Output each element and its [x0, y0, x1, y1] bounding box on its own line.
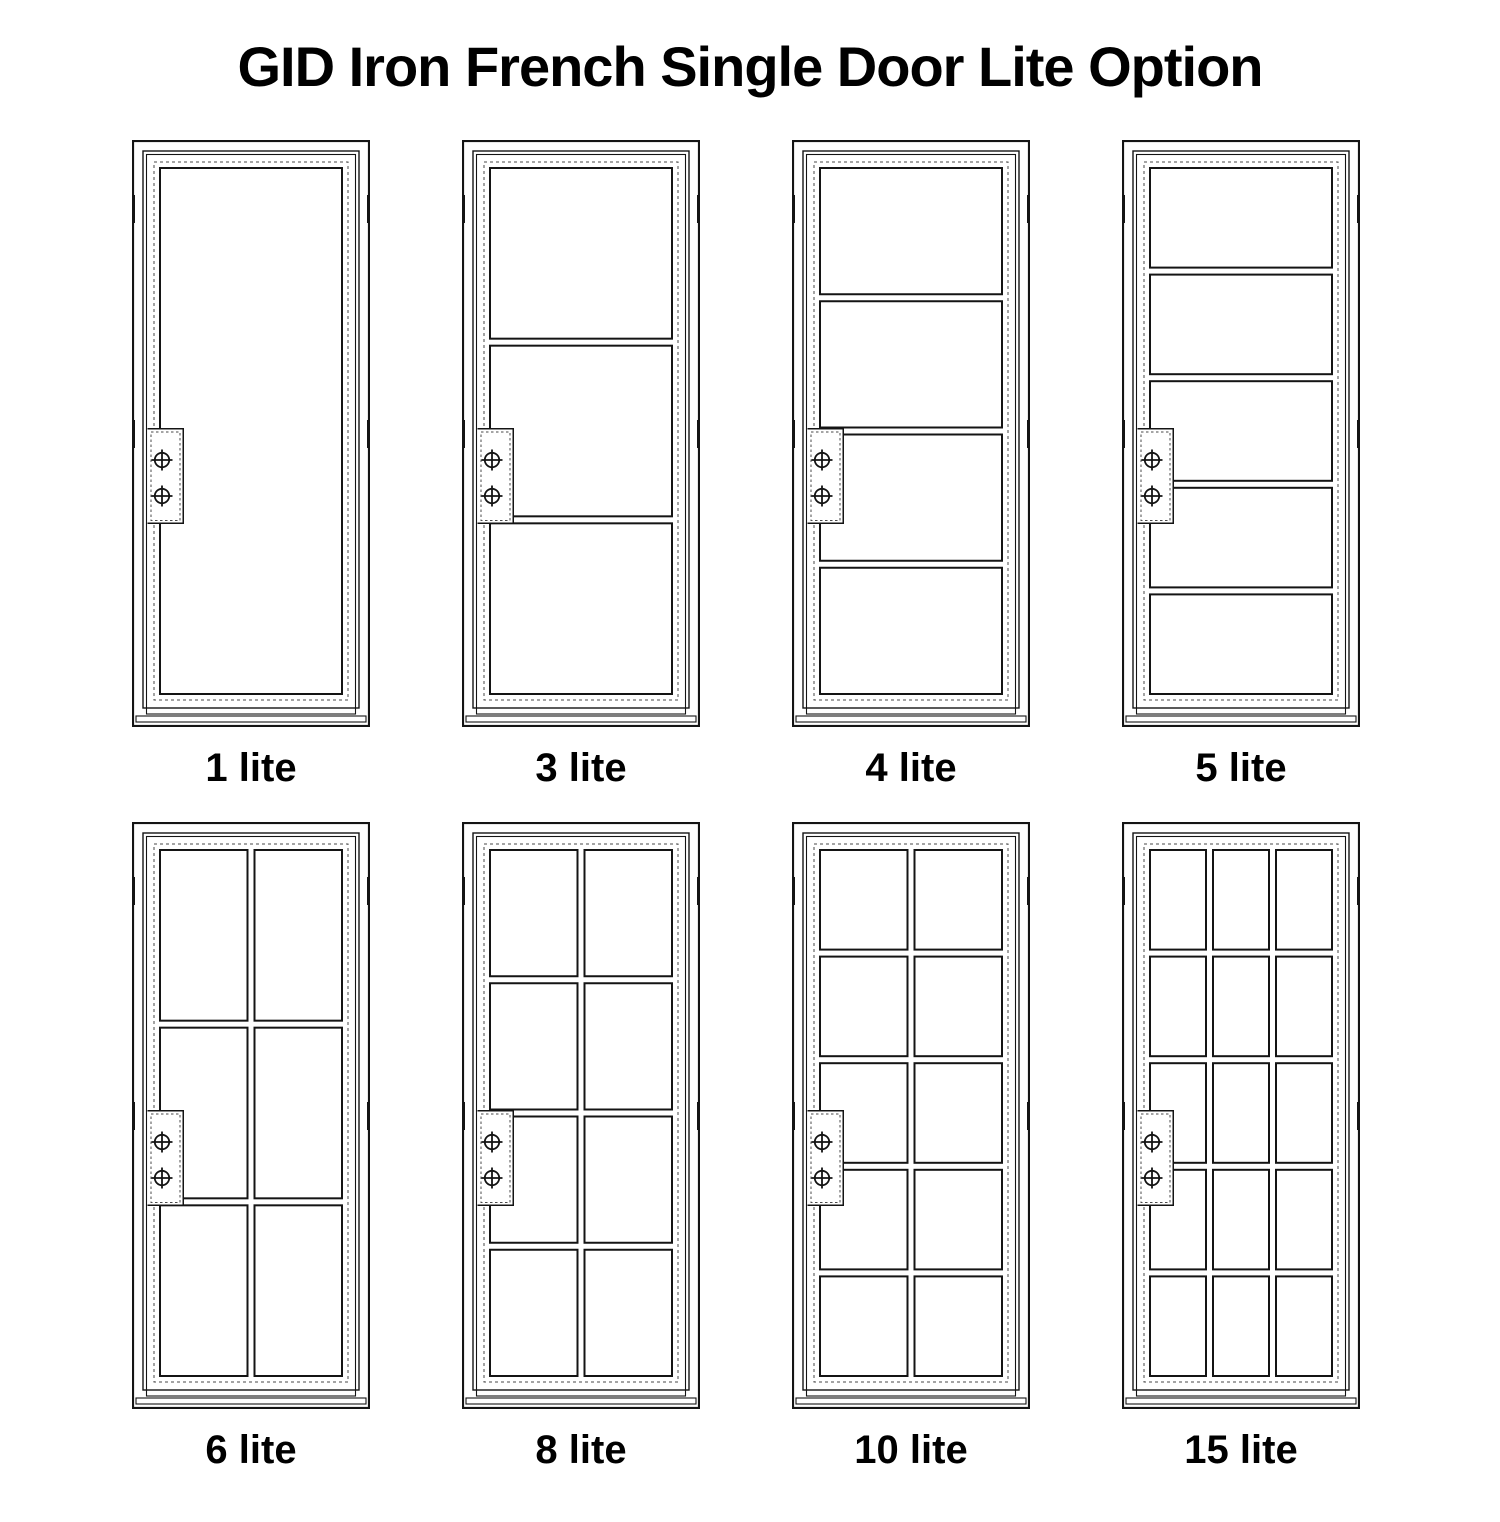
hinge-mark-icon	[132, 877, 135, 905]
door-svg	[132, 822, 370, 1409]
door-drawing	[132, 140, 370, 727]
door-option-6-lite: 6 lite	[132, 822, 370, 1522]
door-label: 10 lite	[854, 1428, 967, 1473]
lock-plate	[808, 428, 845, 524]
hinge-mark-icon	[1027, 1102, 1030, 1130]
door-svg	[462, 140, 700, 727]
hinge-mark-icon	[1122, 420, 1125, 448]
hinge-mark-icon	[1027, 195, 1030, 223]
hinge-mark-icon	[367, 877, 370, 905]
hinge-mark-icon	[1357, 1102, 1360, 1130]
door-drawing	[792, 140, 1030, 727]
hinge-mark-icon	[1122, 877, 1125, 905]
door-drawing	[462, 140, 700, 727]
lock-plate	[148, 428, 185, 524]
hinge-mark-icon	[792, 1102, 795, 1130]
lock-plate	[808, 1110, 845, 1206]
lock-plate	[478, 1110, 515, 1206]
hinge-mark-icon	[1027, 877, 1030, 905]
lock-plate	[478, 428, 515, 524]
hinge-mark-icon	[462, 195, 465, 223]
lock-plate	[148, 1110, 185, 1206]
door-svg	[132, 140, 370, 727]
hinge-mark-icon	[792, 420, 795, 448]
door-svg	[792, 140, 1030, 727]
hinge-mark-icon	[367, 420, 370, 448]
door-drawing	[1122, 140, 1360, 727]
hinge-mark-icon	[697, 1102, 700, 1130]
hinge-mark-icon	[697, 420, 700, 448]
hinge-mark-icon	[132, 1102, 135, 1130]
hinge-mark-icon	[792, 195, 795, 223]
page-title: GID Iron French Single Door Lite Option	[0, 34, 1500, 99]
hinge-mark-icon	[697, 877, 700, 905]
door-option-3-lite: 3 lite	[462, 140, 700, 840]
hinge-mark-icon	[367, 1102, 370, 1130]
hinge-mark-icon	[462, 1102, 465, 1130]
door-label: 8 lite	[535, 1428, 626, 1473]
door-drawing	[792, 822, 1030, 1409]
door-svg	[792, 822, 1030, 1409]
door-label: 1 lite	[205, 746, 296, 791]
hinge-mark-icon	[792, 877, 795, 905]
hinge-mark-icon	[1122, 1102, 1125, 1130]
door-label: 5 lite	[1195, 746, 1286, 791]
door-svg	[462, 822, 700, 1409]
hinge-mark-icon	[367, 195, 370, 223]
hinge-mark-icon	[462, 420, 465, 448]
lock-plate	[1138, 1110, 1175, 1206]
hinge-mark-icon	[1027, 420, 1030, 448]
door-svg	[1122, 822, 1360, 1409]
hinge-mark-icon	[1357, 877, 1360, 905]
door-option-5-lite: 5 lite	[1122, 140, 1360, 840]
door-label: 6 lite	[205, 1428, 296, 1473]
door-option-15-lite: 15 lite	[1122, 822, 1360, 1522]
door-option-8-lite: 8 lite	[462, 822, 700, 1522]
door-option-1-lite: 1 lite	[132, 140, 370, 840]
hinge-mark-icon	[1357, 420, 1360, 448]
door-label: 15 lite	[1184, 1428, 1297, 1473]
hinge-mark-icon	[1122, 195, 1125, 223]
door-drawing	[132, 822, 370, 1409]
hinge-mark-icon	[132, 195, 135, 223]
door-svg	[1122, 140, 1360, 727]
door-drawing	[1122, 822, 1360, 1409]
door-option-10-lite: 10 lite	[792, 822, 1030, 1522]
lock-plate	[1138, 428, 1175, 524]
door-option-4-lite: 4 lite	[792, 140, 1030, 840]
hinge-mark-icon	[697, 195, 700, 223]
hinge-mark-icon	[132, 420, 135, 448]
door-drawing	[462, 822, 700, 1409]
door-label: 3 lite	[535, 746, 626, 791]
door-label: 4 lite	[865, 746, 956, 791]
hinge-mark-icon	[1357, 195, 1360, 223]
hinge-mark-icon	[462, 877, 465, 905]
